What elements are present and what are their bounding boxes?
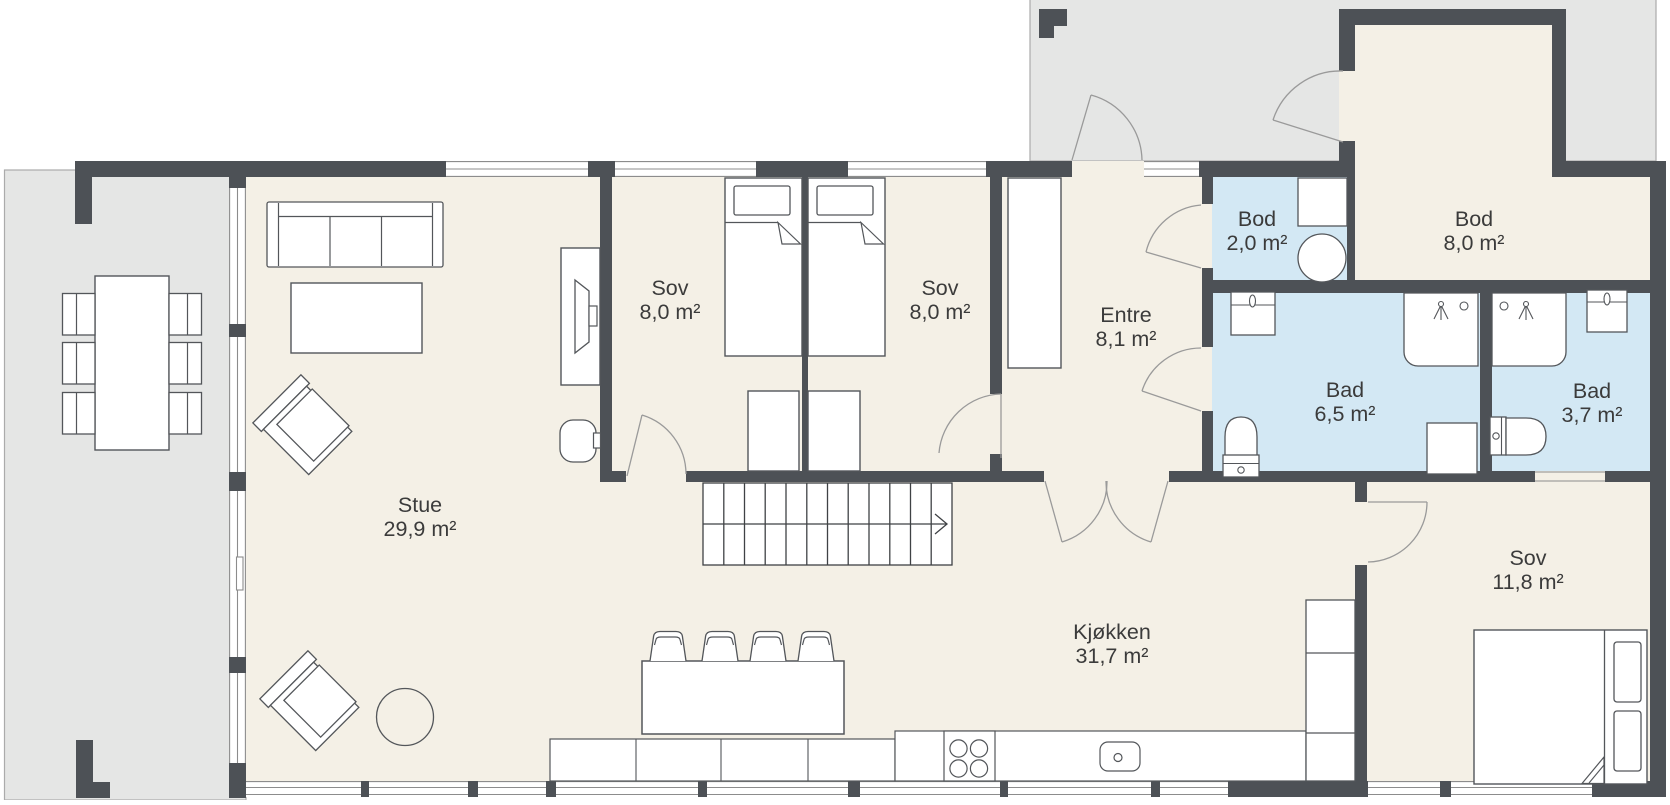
svg-text:31,7 m²: 31,7 m²	[1076, 644, 1149, 668]
svg-text:8,0 m²: 8,0 m²	[640, 300, 701, 324]
svg-text:3,7 m²: 3,7 m²	[1562, 403, 1623, 427]
svg-text:Bod: Bod	[1238, 207, 1276, 231]
svg-text:6,5 m²: 6,5 m²	[1315, 402, 1376, 426]
svg-text:Bad: Bad	[1326, 378, 1364, 402]
svg-text:Kjøkken: Kjøkken	[1073, 620, 1151, 644]
svg-text:8,1 m²: 8,1 m²	[1096, 327, 1157, 351]
svg-text:Sov: Sov	[1509, 546, 1546, 570]
svg-text:8,0 m²: 8,0 m²	[1444, 231, 1505, 255]
svg-text:Entre: Entre	[1100, 303, 1151, 327]
svg-text:2,0 m²: 2,0 m²	[1227, 231, 1288, 255]
svg-text:29,9 m²: 29,9 m²	[384, 517, 457, 541]
svg-text:11,8 m²: 11,8 m²	[1492, 570, 1563, 594]
svg-text:Sov: Sov	[651, 276, 688, 300]
svg-text:Bad: Bad	[1573, 379, 1611, 403]
svg-text:Stue: Stue	[398, 493, 442, 517]
svg-text:Sov: Sov	[921, 276, 958, 300]
svg-text:8,0 m²: 8,0 m²	[910, 300, 971, 324]
svg-text:Bod: Bod	[1455, 207, 1493, 231]
